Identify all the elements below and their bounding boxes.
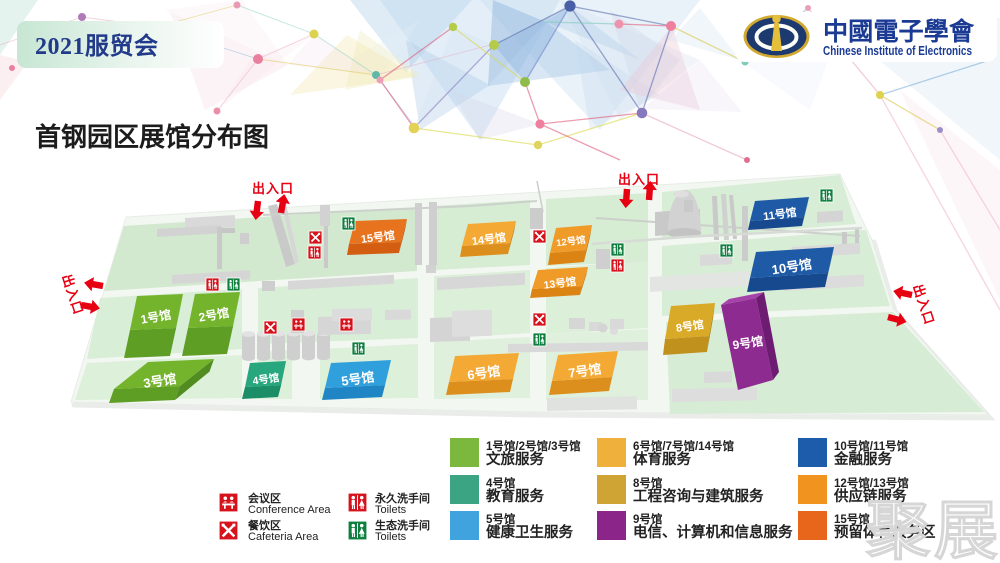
svg-text:中國電子學會: 中國電子學會 bbox=[823, 17, 975, 46]
svg-text:Toilets: Toilets bbox=[375, 504, 407, 516]
svg-text:教育服务: 教育服务 bbox=[485, 487, 544, 505]
svg-text:餐饮区: 餐饮区 bbox=[247, 518, 281, 532]
svg-text:出入口: 出入口 bbox=[910, 282, 937, 327]
svg-text:会议区: 会议区 bbox=[248, 491, 281, 505]
svg-text:Conference Area: Conference Area bbox=[248, 504, 331, 516]
svg-text:2021服贸会: 2021服贸会 bbox=[35, 32, 159, 60]
svg-text:出入口: 出入口 bbox=[59, 272, 86, 317]
svg-text:1号馆/2号馆/3号馆: 1号馆/2号馆/3号馆 bbox=[486, 439, 581, 453]
svg-text:金融服务: 金融服务 bbox=[833, 450, 892, 468]
svg-text:9号馆: 9号馆 bbox=[633, 512, 663, 526]
svg-text:10号馆/11号馆: 10号馆/11号馆 bbox=[834, 439, 909, 453]
svg-text:4号馆: 4号馆 bbox=[486, 476, 516, 490]
svg-text:Chinese Institute of Electroni: Chinese Institute of Electronics bbox=[823, 44, 972, 58]
svg-text:出入口: 出入口 bbox=[618, 172, 660, 187]
svg-text:6号馆/7号馆/14号馆: 6号馆/7号馆/14号馆 bbox=[633, 439, 734, 453]
svg-text:永久洗手间: 永久洗手间 bbox=[374, 491, 430, 505]
svg-text:体育服务: 体育服务 bbox=[633, 450, 691, 468]
svg-text:出入口: 出入口 bbox=[252, 181, 294, 196]
svg-text:文旅服务: 文旅服务 bbox=[486, 450, 544, 468]
svg-text:15号馆: 15号馆 bbox=[834, 512, 870, 526]
svg-text:5号馆: 5号馆 bbox=[486, 512, 516, 526]
svg-text:Cafeteria Area: Cafeteria Area bbox=[248, 531, 319, 543]
svg-text:电信、计算机和信息服务: 电信、计算机和信息服务 bbox=[633, 523, 793, 541]
svg-text:8号馆: 8号馆 bbox=[633, 476, 663, 490]
svg-text:工程咨询与建筑服务: 工程咨询与建筑服务 bbox=[633, 487, 764, 505]
svg-text:12号馆/13号馆: 12号馆/13号馆 bbox=[834, 476, 909, 490]
svg-text:生态洗手间: 生态洗手间 bbox=[375, 518, 430, 532]
svg-text:聚展: 聚展 bbox=[865, 495, 1000, 563]
svg-text:Toilets: Toilets bbox=[375, 531, 407, 543]
svg-text:健康卫生服务: 健康卫生服务 bbox=[486, 523, 573, 541]
svg-text:首钢园区展馆分布图: 首钢园区展馆分布图 bbox=[35, 122, 269, 152]
